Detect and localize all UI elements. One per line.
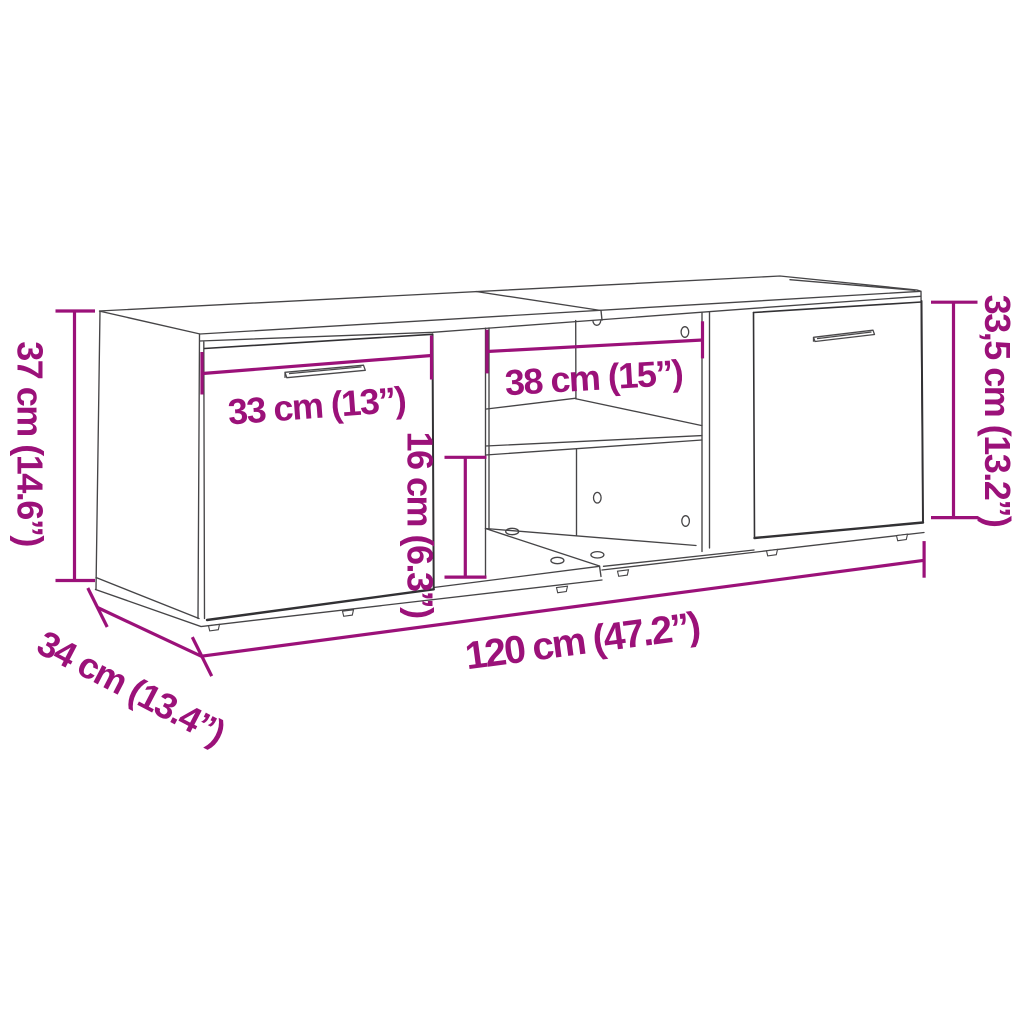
- svg-text:38 cm (15”): 38 cm (15”): [504, 352, 684, 403]
- svg-text:34 cm (13.4”): 34 cm (13.4”): [31, 622, 232, 753]
- svg-text:16 cm (6.3”): 16 cm (6.3”): [400, 431, 441, 618]
- svg-text:37 cm (14.6”): 37 cm (14.6”): [10, 341, 51, 546]
- svg-text:33 cm (13”): 33 cm (13”): [226, 379, 407, 433]
- svg-text:33,5 cm (13.2”): 33,5 cm (13.2”): [977, 295, 1018, 527]
